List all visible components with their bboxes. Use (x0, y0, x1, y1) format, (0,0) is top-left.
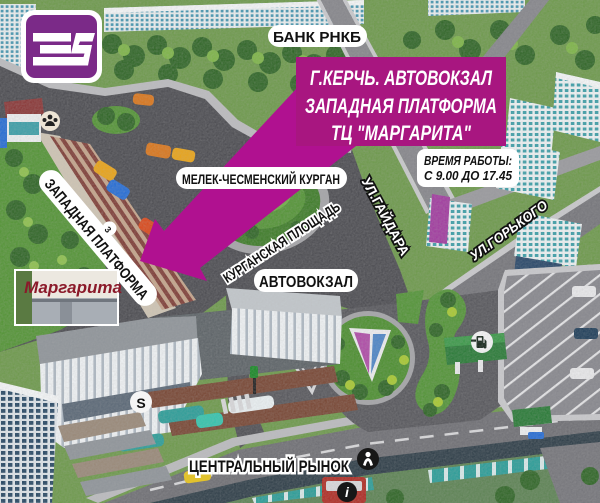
svg-text:С 9.00 ДО 17.45: С 9.00 ДО 17.45 (424, 169, 513, 183)
svg-text:ЗАПАДНАЯ ПЛАТФОРМА: ЗАПАДНАЯ ПЛАТФОРМА (305, 95, 497, 118)
svg-text:ВРЕМЯ РАБОТЫ:: ВРЕМЯ РАБОТЫ: (424, 154, 512, 168)
svg-text:S: S (136, 395, 145, 411)
svg-text:АВТОВОКЗАЛ: АВТОВОКЗАЛ (259, 274, 353, 291)
svg-text:МЕЛЕК-ЧЕСМЕНСКИЙ КУРГАН: МЕЛЕК-ЧЕСМЕНСКИЙ КУРГАН (182, 170, 340, 187)
svg-text:Г.КЕРЧЬ. АВТОВОКЗАЛ: Г.КЕРЧЬ. АВТОВОКЗАЛ (310, 67, 492, 90)
svg-text:БАНК РНКБ: БАНК РНКБ (273, 30, 361, 46)
svg-text:ЦЕНТРАЛЬНЫЙ РЫНОК: ЦЕНТРАЛЬНЫЙ РЫНОК (189, 457, 349, 476)
svg-text:ТЦ "МАРГАРИТА": ТЦ "МАРГАРИТА" (331, 122, 472, 145)
svg-text:Маргарита: Маргарита (24, 278, 122, 297)
